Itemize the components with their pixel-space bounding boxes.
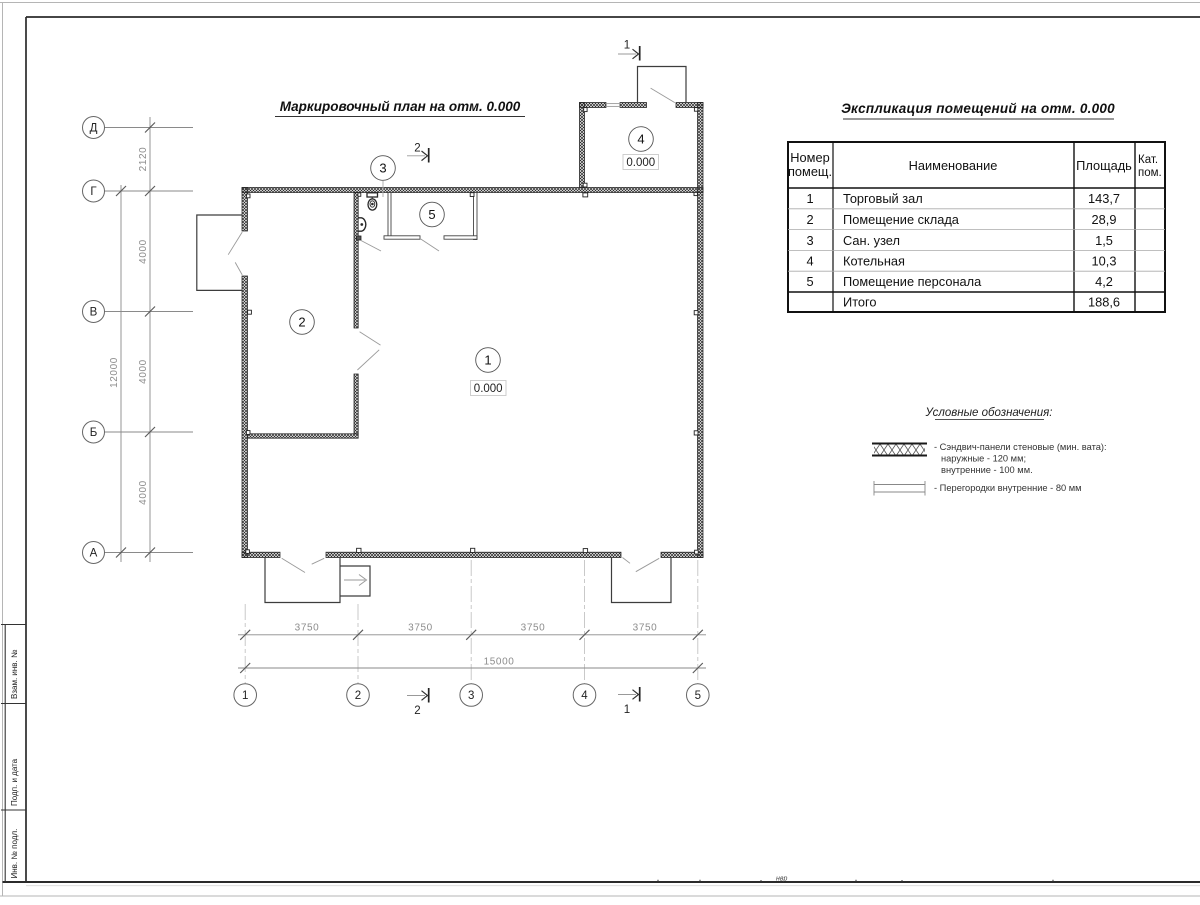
svg-text:Номер: Номер bbox=[790, 150, 829, 165]
svg-text:3750: 3750 bbox=[408, 623, 433, 634]
svg-text:1: 1 bbox=[806, 191, 813, 206]
svg-text:Маркировочный план на отм. 0.0: Маркировочный план на отм. 0.000 bbox=[280, 99, 521, 114]
svg-text:3750: 3750 bbox=[633, 623, 658, 634]
svg-text:2: 2 bbox=[414, 143, 420, 155]
svg-text:- Сэндвич-панели стеновые (мин: - Сэндвич-панели стеновые (мин. вата): bbox=[934, 442, 1107, 452]
svg-text:1: 1 bbox=[624, 40, 630, 52]
svg-text:В: В bbox=[90, 307, 98, 319]
svg-text:4000: 4000 bbox=[138, 480, 149, 505]
svg-text:А: А bbox=[90, 548, 98, 560]
svg-text:4: 4 bbox=[581, 690, 588, 702]
svg-text:15000: 15000 bbox=[484, 657, 515, 668]
svg-text:0.000: 0.000 bbox=[626, 157, 655, 169]
svg-text:Условные обозначения:: Условные обозначения: bbox=[925, 407, 1053, 419]
svg-text:Торговый зал: Торговый зал bbox=[843, 191, 923, 206]
svg-text:Сан. узел: Сан. узел bbox=[843, 233, 900, 248]
svg-text:пом.: пом. bbox=[1138, 167, 1162, 179]
svg-text:нвр: нвр bbox=[776, 876, 788, 883]
svg-text:188,6: 188,6 bbox=[1088, 295, 1120, 310]
svg-text:3750: 3750 bbox=[521, 623, 546, 634]
svg-text:1: 1 bbox=[484, 353, 491, 368]
svg-text:Экспликация помещений на отм.: Экспликация помещений на отм. 0.000 bbox=[841, 101, 1115, 116]
svg-text:Площадь: Площадь bbox=[1076, 158, 1132, 173]
svg-text:Помещение склада: Помещение склада bbox=[843, 212, 960, 227]
svg-text:внутренние - 100 мм.: внутренние - 100 мм. bbox=[941, 465, 1033, 475]
svg-text:5: 5 bbox=[695, 690, 701, 702]
svg-text:Г: Г bbox=[90, 186, 97, 198]
svg-text:4: 4 bbox=[806, 254, 813, 269]
svg-text:143,7: 143,7 bbox=[1088, 191, 1120, 206]
svg-text:2: 2 bbox=[806, 212, 813, 227]
svg-text:10,3: 10,3 bbox=[1092, 254, 1117, 269]
svg-text:4000: 4000 bbox=[138, 359, 149, 384]
svg-text:4: 4 bbox=[637, 132, 644, 147]
svg-text:3: 3 bbox=[379, 161, 386, 176]
svg-text:2120: 2120 bbox=[138, 147, 149, 172]
svg-text:Инв. № подл.: Инв. № подл. bbox=[10, 829, 19, 879]
svg-text:Подп. и дата: Подп. и дата bbox=[10, 758, 19, 806]
svg-text:- Перегородки внутренние - 80: - Перегородки внутренние - 80 мм bbox=[934, 483, 1082, 493]
svg-text:Помещение персонала: Помещение персонала bbox=[843, 274, 982, 289]
svg-text:Взам. инв. №: Взам. инв. № bbox=[10, 649, 19, 699]
svg-text:Б: Б bbox=[90, 427, 98, 439]
svg-text:Котельная: Котельная bbox=[843, 254, 905, 269]
svg-text:2: 2 bbox=[298, 315, 305, 330]
svg-text:3: 3 bbox=[468, 690, 474, 702]
svg-text:4,2: 4,2 bbox=[1095, 274, 1113, 289]
svg-text:4000: 4000 bbox=[138, 239, 149, 264]
svg-text:1: 1 bbox=[624, 704, 630, 716]
svg-text:1: 1 bbox=[242, 690, 248, 702]
svg-text:Итого: Итого bbox=[843, 295, 877, 310]
svg-text:12000: 12000 bbox=[109, 357, 120, 388]
svg-text:28,9: 28,9 bbox=[1092, 212, 1117, 227]
svg-text:2: 2 bbox=[414, 705, 420, 717]
svg-text:Д: Д bbox=[90, 123, 98, 135]
svg-text:0.000: 0.000 bbox=[474, 383, 503, 395]
svg-text:наружные - 120 мм;: наружные - 120 мм; bbox=[941, 454, 1026, 464]
svg-text:помещ.: помещ. bbox=[788, 164, 832, 179]
svg-text:5: 5 bbox=[428, 207, 435, 222]
svg-text:3: 3 bbox=[806, 233, 813, 248]
svg-text:2: 2 bbox=[355, 690, 361, 702]
svg-text:3750: 3750 bbox=[295, 623, 320, 634]
svg-text:Кат.: Кат. bbox=[1138, 154, 1158, 166]
svg-text:1,5: 1,5 bbox=[1095, 233, 1113, 248]
svg-text:5: 5 bbox=[806, 274, 813, 289]
svg-text:Наименование: Наименование bbox=[909, 158, 998, 173]
